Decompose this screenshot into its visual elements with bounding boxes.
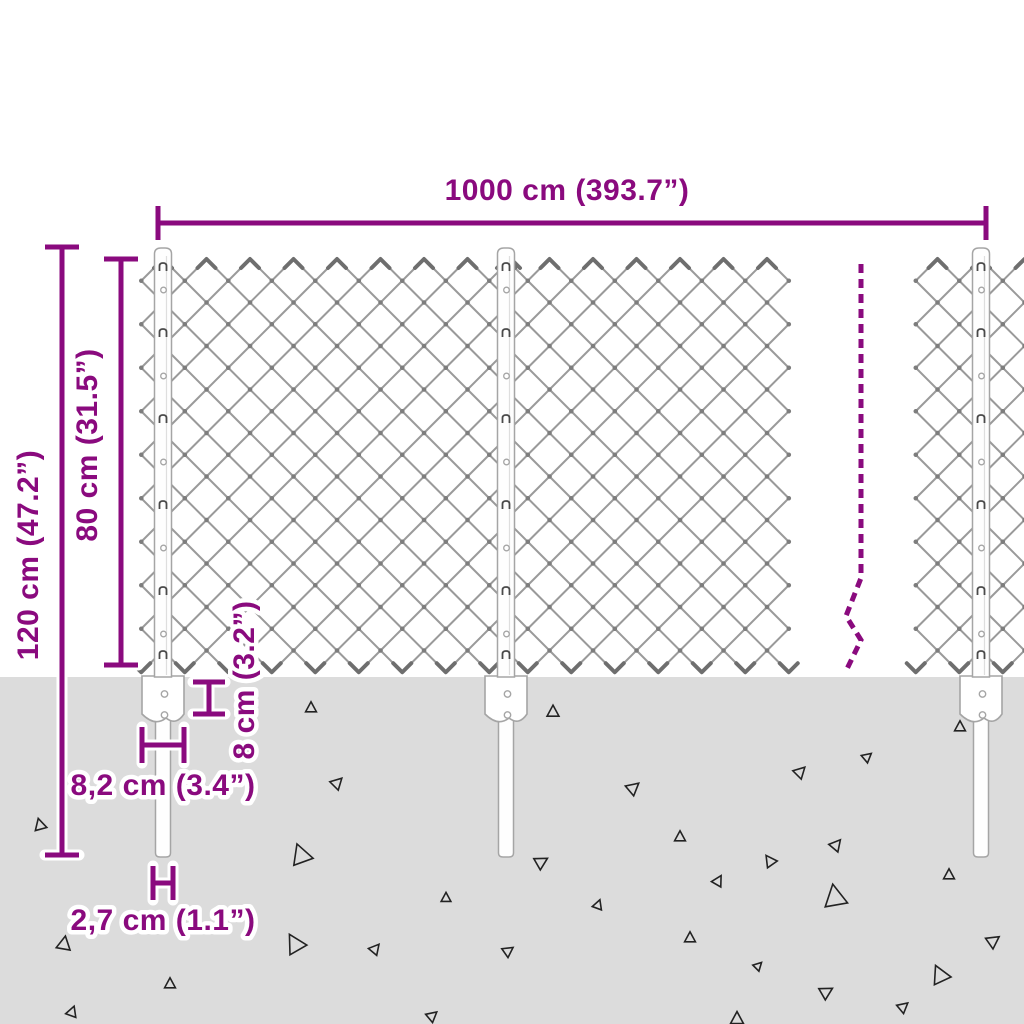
- label-fence-width: 1000 cm (393.7”): [445, 174, 690, 207]
- label-anchor-plate-width: 8,2 cm (3.4”): [71, 769, 256, 802]
- chain-link-mesh: [132, 259, 1024, 672]
- fence-dimension-diagram: 1000 cm (393.7”) 120 cm (47.2”) 80 cm (3…: [0, 0, 1024, 1024]
- label-total-height: 120 cm (47.2”): [12, 450, 45, 660]
- diagram-canvas: 1000 cm (393.7”) 120 cm (47.2”) 80 cm (3…: [0, 0, 1024, 1024]
- label-post-width: 2,7 cm (1.1”): [71, 904, 256, 937]
- label-mesh-height: 80 cm (31.5”): [71, 348, 104, 541]
- label-anchor-plate-height: 8 cm (3.2”): [228, 601, 261, 760]
- break-dashed-line: [845, 264, 861, 673]
